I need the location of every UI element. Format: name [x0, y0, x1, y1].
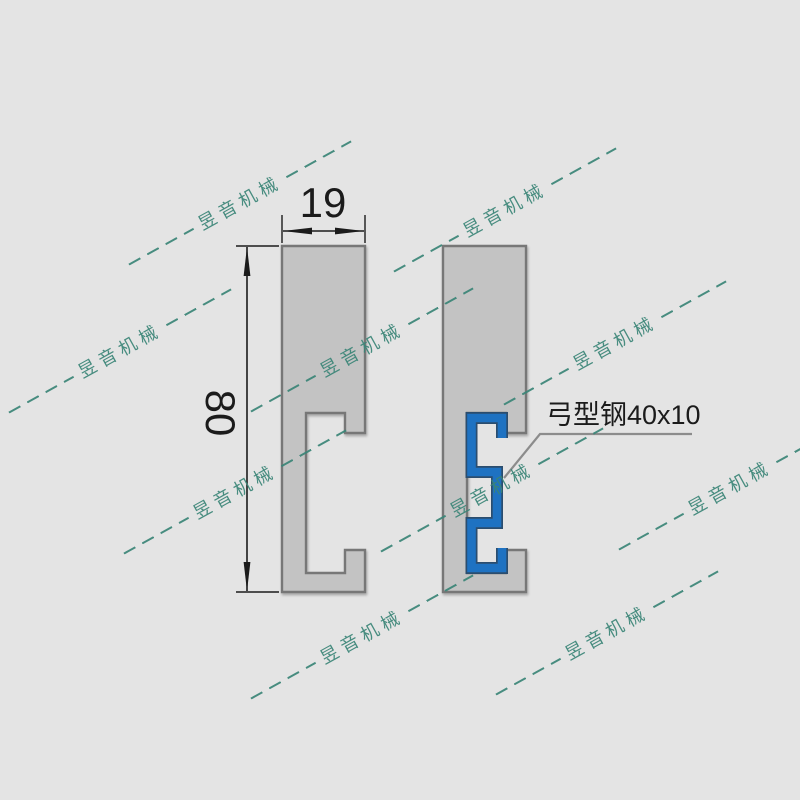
height-dimension: 80: [197, 246, 279, 592]
width-dimension: 19: [282, 179, 365, 243]
left-profile-shape: [282, 246, 365, 592]
bow-steel-insert: [472, 418, 503, 568]
width-dimension-value: 19: [300, 179, 347, 226]
drawing-canvas: 19 80 弓型钢40x10 昱音机械昱音机械昱音机械昱音机械昱音机械昱音机械昱…: [0, 0, 800, 800]
height-dimension-value: 80: [197, 390, 244, 437]
callout-label: 弓型钢40x10: [546, 400, 701, 430]
technical-drawing: 19 80 弓型钢40x10: [0, 0, 800, 800]
callout: 弓型钢40x10: [504, 400, 701, 478]
dim-arrow-left-icon: [283, 228, 312, 235]
dim-arrow-up-icon: [244, 247, 251, 276]
dim-arrow-right-icon: [335, 228, 364, 235]
callout-leader-line: [504, 434, 692, 478]
dim-arrow-down-icon: [244, 562, 251, 591]
